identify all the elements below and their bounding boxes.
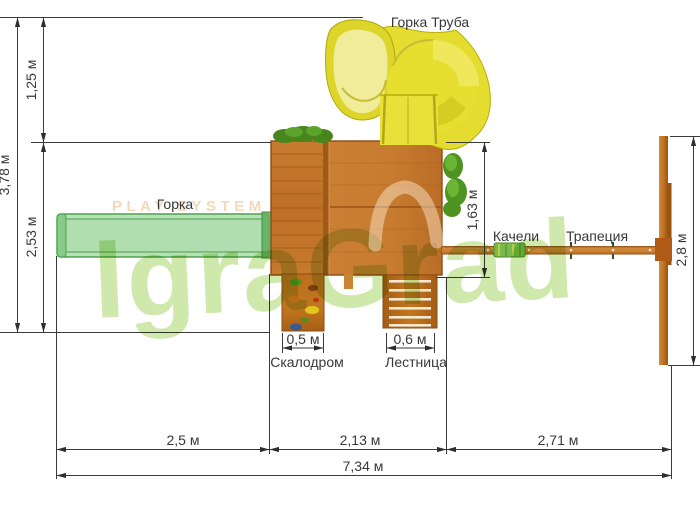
svg-text:0,6 м: 0,6 м — [394, 331, 427, 347]
svg-text:Горка Труба: Горка Труба — [391, 14, 470, 30]
svg-text:2,13 м: 2,13 м — [340, 432, 381, 448]
svg-text:7,34 м: 7,34 м — [343, 458, 384, 474]
svg-text:3,78 м: 3,78 м — [0, 155, 12, 196]
svg-text:2,8 м: 2,8 м — [673, 234, 689, 267]
svg-text:Трапеция: Трапеция — [566, 228, 628, 244]
svg-text:2,53 м: 2,53 м — [23, 217, 39, 258]
svg-text:Лестница: Лестница — [385, 354, 447, 370]
svg-text:Горка: Горка — [157, 196, 194, 212]
svg-text:IgraGrad: IgraGrad — [91, 196, 579, 342]
svg-text:2,71 м: 2,71 м — [538, 432, 579, 448]
svg-text:1,25 м: 1,25 м — [23, 60, 39, 101]
svg-text:Скалодром: Скалодром — [270, 354, 344, 370]
svg-text:2,5 м: 2,5 м — [167, 432, 200, 448]
